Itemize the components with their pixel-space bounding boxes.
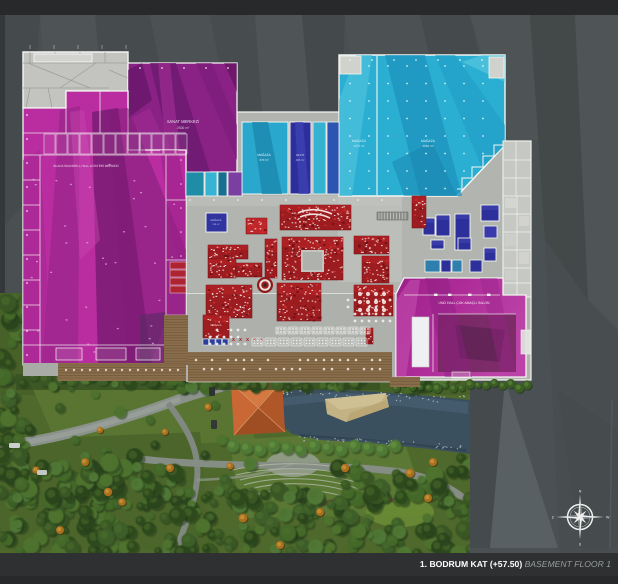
svg-text:MAĞAZA: MAĞAZA [257, 153, 271, 157]
svg-text:N: N [579, 490, 582, 494]
svg-text:370 m²: 370 m² [259, 158, 268, 162]
svg-text:1. BODRUM KAT (+57.50) BASEMEN: 1. BODRUM KAT (+57.50) BASEMENT FLOOR 1 [420, 559, 611, 569]
svg-text:W: W [606, 516, 610, 520]
svg-text:MAĞAZA: MAĞAZA [421, 139, 436, 143]
svg-text:2500 m²: 2500 m² [177, 126, 190, 130]
svg-text:DEPO: DEPO [296, 153, 305, 157]
svg-text:203 m²: 203 m² [296, 158, 305, 162]
svg-text:MAĞAZA: MAĞAZA [352, 139, 367, 143]
svg-text:2066 m²: 2066 m² [422, 144, 433, 148]
svg-text:MAĞAZA: MAĞAZA [211, 323, 222, 327]
svg-text:UNO HALL ÇOK AMAÇLI SALON: UNO HALL ÇOK AMAÇLI SALON [439, 301, 490, 305]
svg-text:SANAT MERKEZİ: SANAT MERKEZİ [167, 119, 200, 124]
svg-text:1472 m²: 1472 m² [353, 144, 364, 148]
svg-text:BLACK BOX/DRILL HALL GÖSTERİ M: BLACK BOX/DRILL HALL GÖSTERİ MERKEZİ [54, 164, 119, 168]
svg-text:246 m²: 246 m² [212, 223, 220, 226]
svg-text:MAĞAZA: MAĞAZA [211, 218, 222, 222]
